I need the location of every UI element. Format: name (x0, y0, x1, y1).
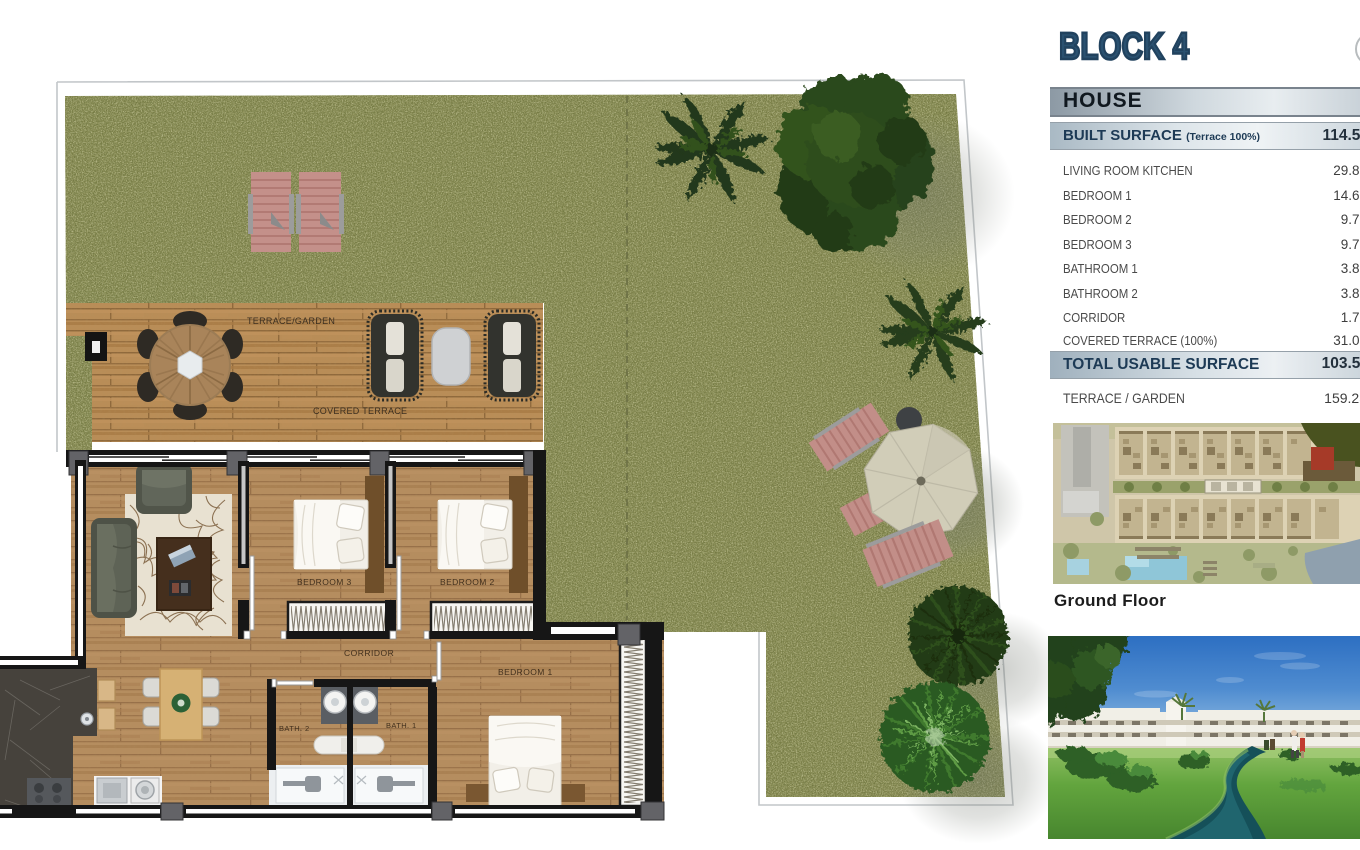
svg-text:BEDROOM 2: BEDROOM 2 (440, 577, 495, 587)
svg-text:COVERED TERRACE: COVERED TERRACE (313, 406, 407, 416)
svg-text:BATH. 1: BATH. 1 (386, 721, 417, 730)
svg-text:TERRACE/GARDEN: TERRACE/GARDEN (247, 316, 335, 326)
svg-text:BATH. 2: BATH. 2 (279, 724, 310, 733)
svg-text:BEDROOM 3: BEDROOM 3 (297, 577, 352, 587)
svg-text:CORRIDOR: CORRIDOR (344, 648, 394, 658)
svg-text:BEDROOM 1: BEDROOM 1 (498, 667, 553, 677)
